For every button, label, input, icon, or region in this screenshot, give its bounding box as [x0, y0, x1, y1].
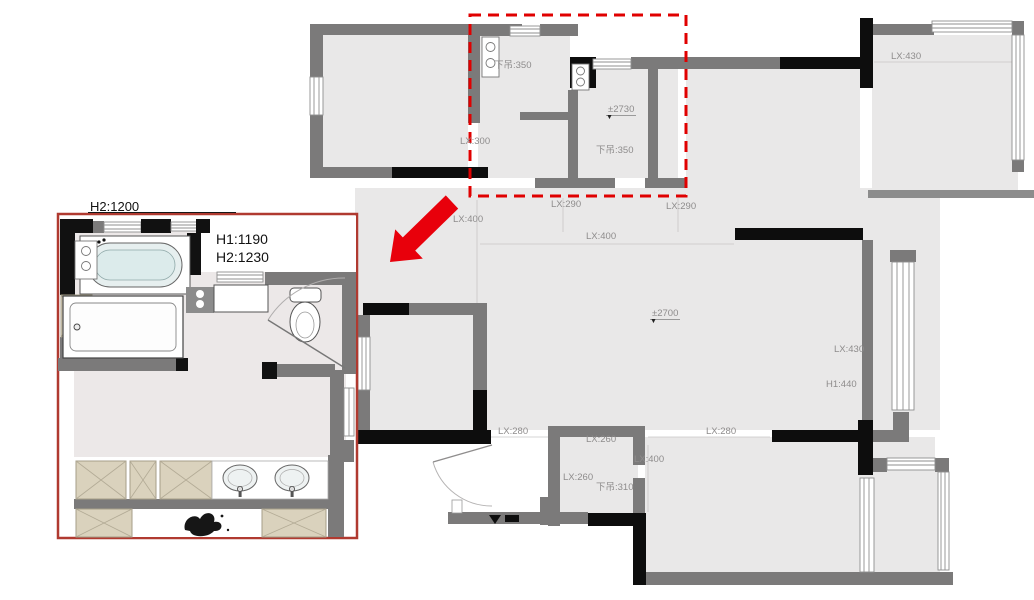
- dim-label-lx260-a: LX:260: [586, 434, 616, 445]
- inset-leader-line: [88, 212, 236, 213]
- dim-label-lx430-top: LX:430: [891, 51, 921, 62]
- entry-door: [433, 445, 492, 513]
- dim-label-ceiling-drop-c: 下吊:310: [596, 479, 634, 493]
- elevation-marker-2700: ±2700 ▼: [650, 308, 680, 325]
- toilet: [290, 288, 321, 342]
- dim-label-ceiling-drop-b: 下吊:350: [596, 142, 634, 156]
- inset-detail-plan: [58, 214, 357, 538]
- shower-tub: [63, 296, 183, 358]
- dim-label-lx290-a: LX:290: [551, 199, 581, 210]
- inset-height-note: H1:1190 H2:1230: [216, 230, 269, 266]
- dim-label-lx290-b: LX:290: [666, 201, 696, 212]
- lower-cabinets: [76, 509, 326, 537]
- dim-label-h1-440: H1:440: [826, 379, 857, 390]
- dim-label-lx280-b: LX:280: [706, 426, 736, 437]
- washer-icons: [75, 241, 97, 279]
- dim-label-lx400-mid: LX:400: [586, 231, 616, 242]
- floor-plan-svg: [0, 0, 1034, 600]
- dim-label-lx280-a: LX:280: [498, 426, 528, 437]
- main-floor-plan: [310, 18, 1034, 585]
- inset-note-line2: H2:1230: [216, 248, 269, 266]
- dim-label-lx300: LX:300: [460, 136, 490, 147]
- dim-label-lx400-bottom: LX:400: [634, 454, 664, 465]
- dim-label-lx430-right: LX:430: [834, 344, 864, 355]
- vanity: [76, 461, 328, 499]
- dim-label-ceiling-drop-a: 下吊:350: [494, 57, 532, 71]
- elevation-triangle-icon: ▼: [606, 115, 636, 121]
- elevation-marker-2730: ±2730 ▼: [606, 104, 636, 121]
- mid-cabinet: [186, 285, 268, 313]
- dim-label-lx400-left: LX:400: [453, 214, 483, 225]
- elevation-triangle-icon: ▼: [650, 319, 680, 325]
- floor-plan-figure: 下吊:350 LX:300 下吊:350 LX:430 LX:400 LX:29…: [0, 0, 1034, 600]
- dim-label-lx260-b: LX:260: [563, 472, 593, 483]
- inset-note-line1: H1:1190: [216, 230, 269, 248]
